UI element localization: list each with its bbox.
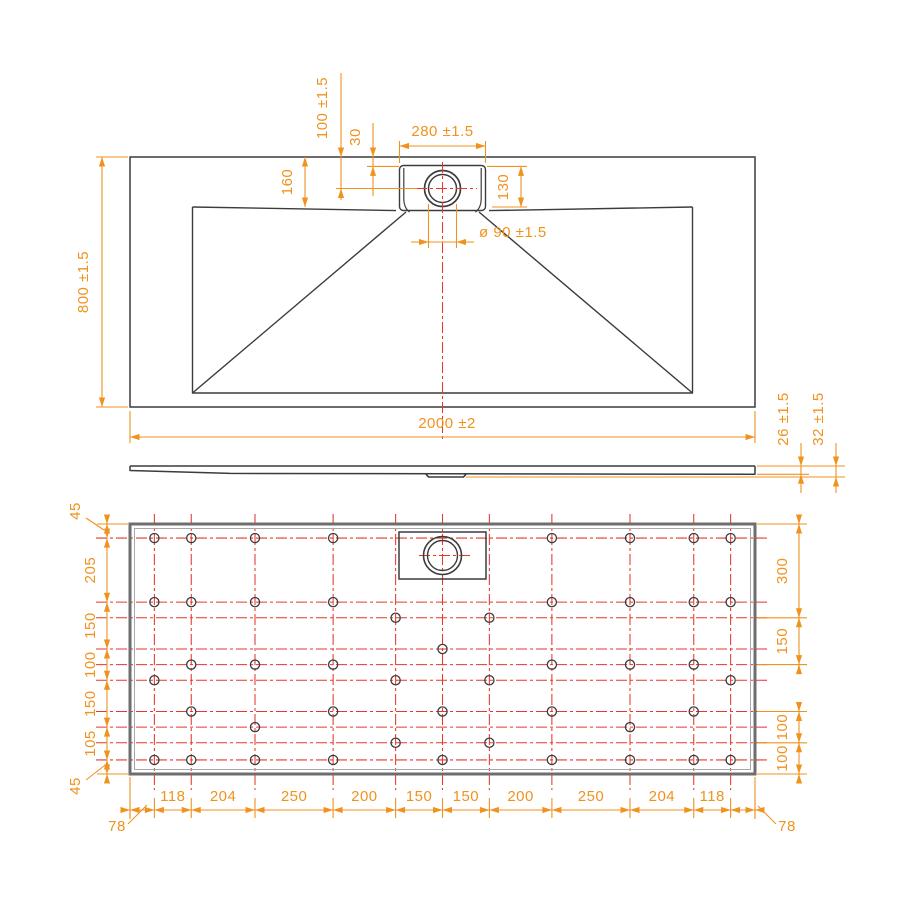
- dim-arrow: [130, 434, 140, 440]
- dim-arrow: [396, 807, 406, 813]
- drawing-canvas: 800 ±1.52000 ±2100 ±1.530280 ±1.5160130ø…: [0, 0, 900, 900]
- dim-arrow: [419, 239, 429, 245]
- dim-arrow: [796, 733, 802, 743]
- dim-arrow: [400, 143, 410, 149]
- dim-label-rim-depth: 160: [279, 169, 296, 196]
- side-view-drain-boss: [426, 474, 466, 477]
- dim-arrow: [386, 807, 396, 813]
- dim-arrow: [721, 807, 731, 813]
- dim-arrow: [796, 655, 802, 665]
- dim-arrow: [796, 608, 802, 618]
- dim-arrow: [370, 166, 376, 176]
- dim-arrow: [302, 198, 308, 208]
- dim-label-bottom-chain: 250: [578, 788, 605, 805]
- dim-arrow: [796, 515, 802, 525]
- dim-label-left-chain: 150: [82, 690, 99, 717]
- dim-arrow: [833, 457, 839, 467]
- dim-arrow: [154, 807, 164, 813]
- dim-arrow: [324, 807, 334, 813]
- dim-label-drain-offset: 100 ±1.5: [314, 77, 331, 139]
- dim-arrow: [796, 765, 802, 775]
- dim-arrow: [746, 434, 756, 440]
- dim-label-recess-length: 280 ±1.5: [411, 123, 473, 140]
- dim-arrow: [796, 712, 802, 722]
- dim-arrow: [518, 198, 524, 208]
- dim-label-bottom-chain: 250: [281, 788, 308, 805]
- dim-label-bottom-chain: 200: [507, 788, 534, 805]
- dim-label-right-chain: 150: [774, 628, 791, 655]
- dim-arrow: [731, 807, 741, 813]
- dim-label-bottom-chain: 150: [453, 788, 480, 805]
- dim-arrow: [796, 702, 802, 712]
- dim-arrow: [684, 807, 694, 813]
- dim-arrow: [255, 807, 265, 813]
- dim-arrow: [333, 807, 343, 813]
- dim-line: [758, 806, 776, 824]
- dim-label-bottom-chain: 118: [699, 788, 724, 805]
- dim-arrow: [552, 807, 562, 813]
- dim-arrow: [104, 538, 110, 548]
- dim-label-left-chain: 100: [82, 651, 99, 678]
- dim-arrow: [246, 807, 256, 813]
- dim-arrow: [833, 477, 839, 487]
- dim-label-bottom-chain: 200: [351, 788, 378, 805]
- dim-arrow: [796, 524, 802, 534]
- dim-arrow: [542, 807, 552, 813]
- dim-arrow: [104, 718, 110, 728]
- dim-arrow: [489, 807, 499, 813]
- dim-label-bottom-chain: 118: [160, 788, 185, 805]
- dim-arrow: [302, 157, 308, 167]
- dim-arrow: [694, 807, 704, 813]
- dim-arrow: [104, 680, 110, 690]
- dim-label-bottom-chain: 204: [649, 788, 676, 805]
- dim-label-drain-diameter: ø 90 ±1.5: [479, 224, 547, 241]
- dim-label-tray-length: 2000 ±2: [418, 415, 476, 432]
- dim-arrow: [480, 807, 490, 813]
- dim-arrow: [104, 602, 110, 612]
- dim-arrow: [338, 189, 344, 199]
- dim-label-left-chain: 150: [82, 612, 99, 639]
- dim-arrow: [104, 593, 110, 603]
- dim-arrow: [104, 640, 110, 650]
- dim-arrow: [99, 398, 105, 408]
- dim-label-overall-thickness: 32 ±1.5: [810, 392, 827, 445]
- dim-label-left-chain: 45: [67, 777, 84, 795]
- side-view-profile: [130, 466, 755, 474]
- dim-arrow: [99, 157, 105, 167]
- dim-arrow: [796, 774, 802, 784]
- dim-arrow: [191, 807, 201, 813]
- dim-arrow: [104, 515, 110, 525]
- dim-arrow: [104, 649, 110, 659]
- dim-label-bottom-chain: 78: [778, 818, 796, 835]
- dim-arrow: [104, 774, 110, 784]
- dim-label-left-chain: 45: [67, 502, 84, 520]
- dim-arrow: [630, 807, 640, 813]
- dim-arrow: [518, 166, 524, 176]
- dim-label-tray-width: 800 ±1.5: [75, 251, 92, 313]
- dim-arrow: [621, 807, 631, 813]
- dim-label-left-chain: 205: [82, 557, 99, 584]
- dim-label-recess-width: 130: [495, 174, 512, 201]
- dim-arrow: [798, 457, 804, 467]
- dim-label-bottom-chain: 150: [406, 788, 433, 805]
- dim-arrow: [796, 665, 802, 675]
- dim-label-thickness: 26 ±1.5: [775, 392, 792, 445]
- top-view-floor-top-left: [193, 207, 397, 211]
- dim-line: [86, 766, 104, 780]
- dim-arrow: [796, 618, 802, 628]
- recess-wall-right: [476, 168, 482, 212]
- dim-arrow: [457, 239, 467, 245]
- dim-label-left-chain: 105: [82, 730, 99, 757]
- dim-arrow: [798, 474, 804, 484]
- dim-arrow: [746, 807, 756, 813]
- dim-label-recess-offset: 30: [347, 128, 364, 146]
- top-view-slope-ridge-left: [193, 212, 407, 393]
- dim-arrow: [182, 807, 192, 813]
- dim-label-bottom-chain: 78: [108, 818, 126, 835]
- dim-label-bottom-chain: 204: [210, 788, 237, 805]
- dim-arrow: [338, 148, 344, 158]
- dim-label-right-chain: 300: [774, 558, 791, 585]
- dim-arrow: [104, 751, 110, 761]
- dim-arrow: [145, 807, 155, 813]
- recess-wall-left: [404, 168, 410, 212]
- dim-arrow: [104, 671, 110, 681]
- dim-arrow: [433, 807, 443, 813]
- dim-label-right-chain: 100: [774, 745, 791, 772]
- dim-label-right-chain: 100: [774, 714, 791, 741]
- dim-arrow: [476, 143, 486, 149]
- shower-tray-technical-drawing: 800 ±1.52000 ±2100 ±1.530280 ±1.5160130ø…: [0, 0, 900, 900]
- dim-arrow: [796, 743, 802, 753]
- dim-arrow: [443, 807, 453, 813]
- dim-arrow: [121, 807, 131, 813]
- dim-arrow: [370, 148, 376, 158]
- dim-arrow: [104, 727, 110, 737]
- dim-arrow: [130, 807, 140, 813]
